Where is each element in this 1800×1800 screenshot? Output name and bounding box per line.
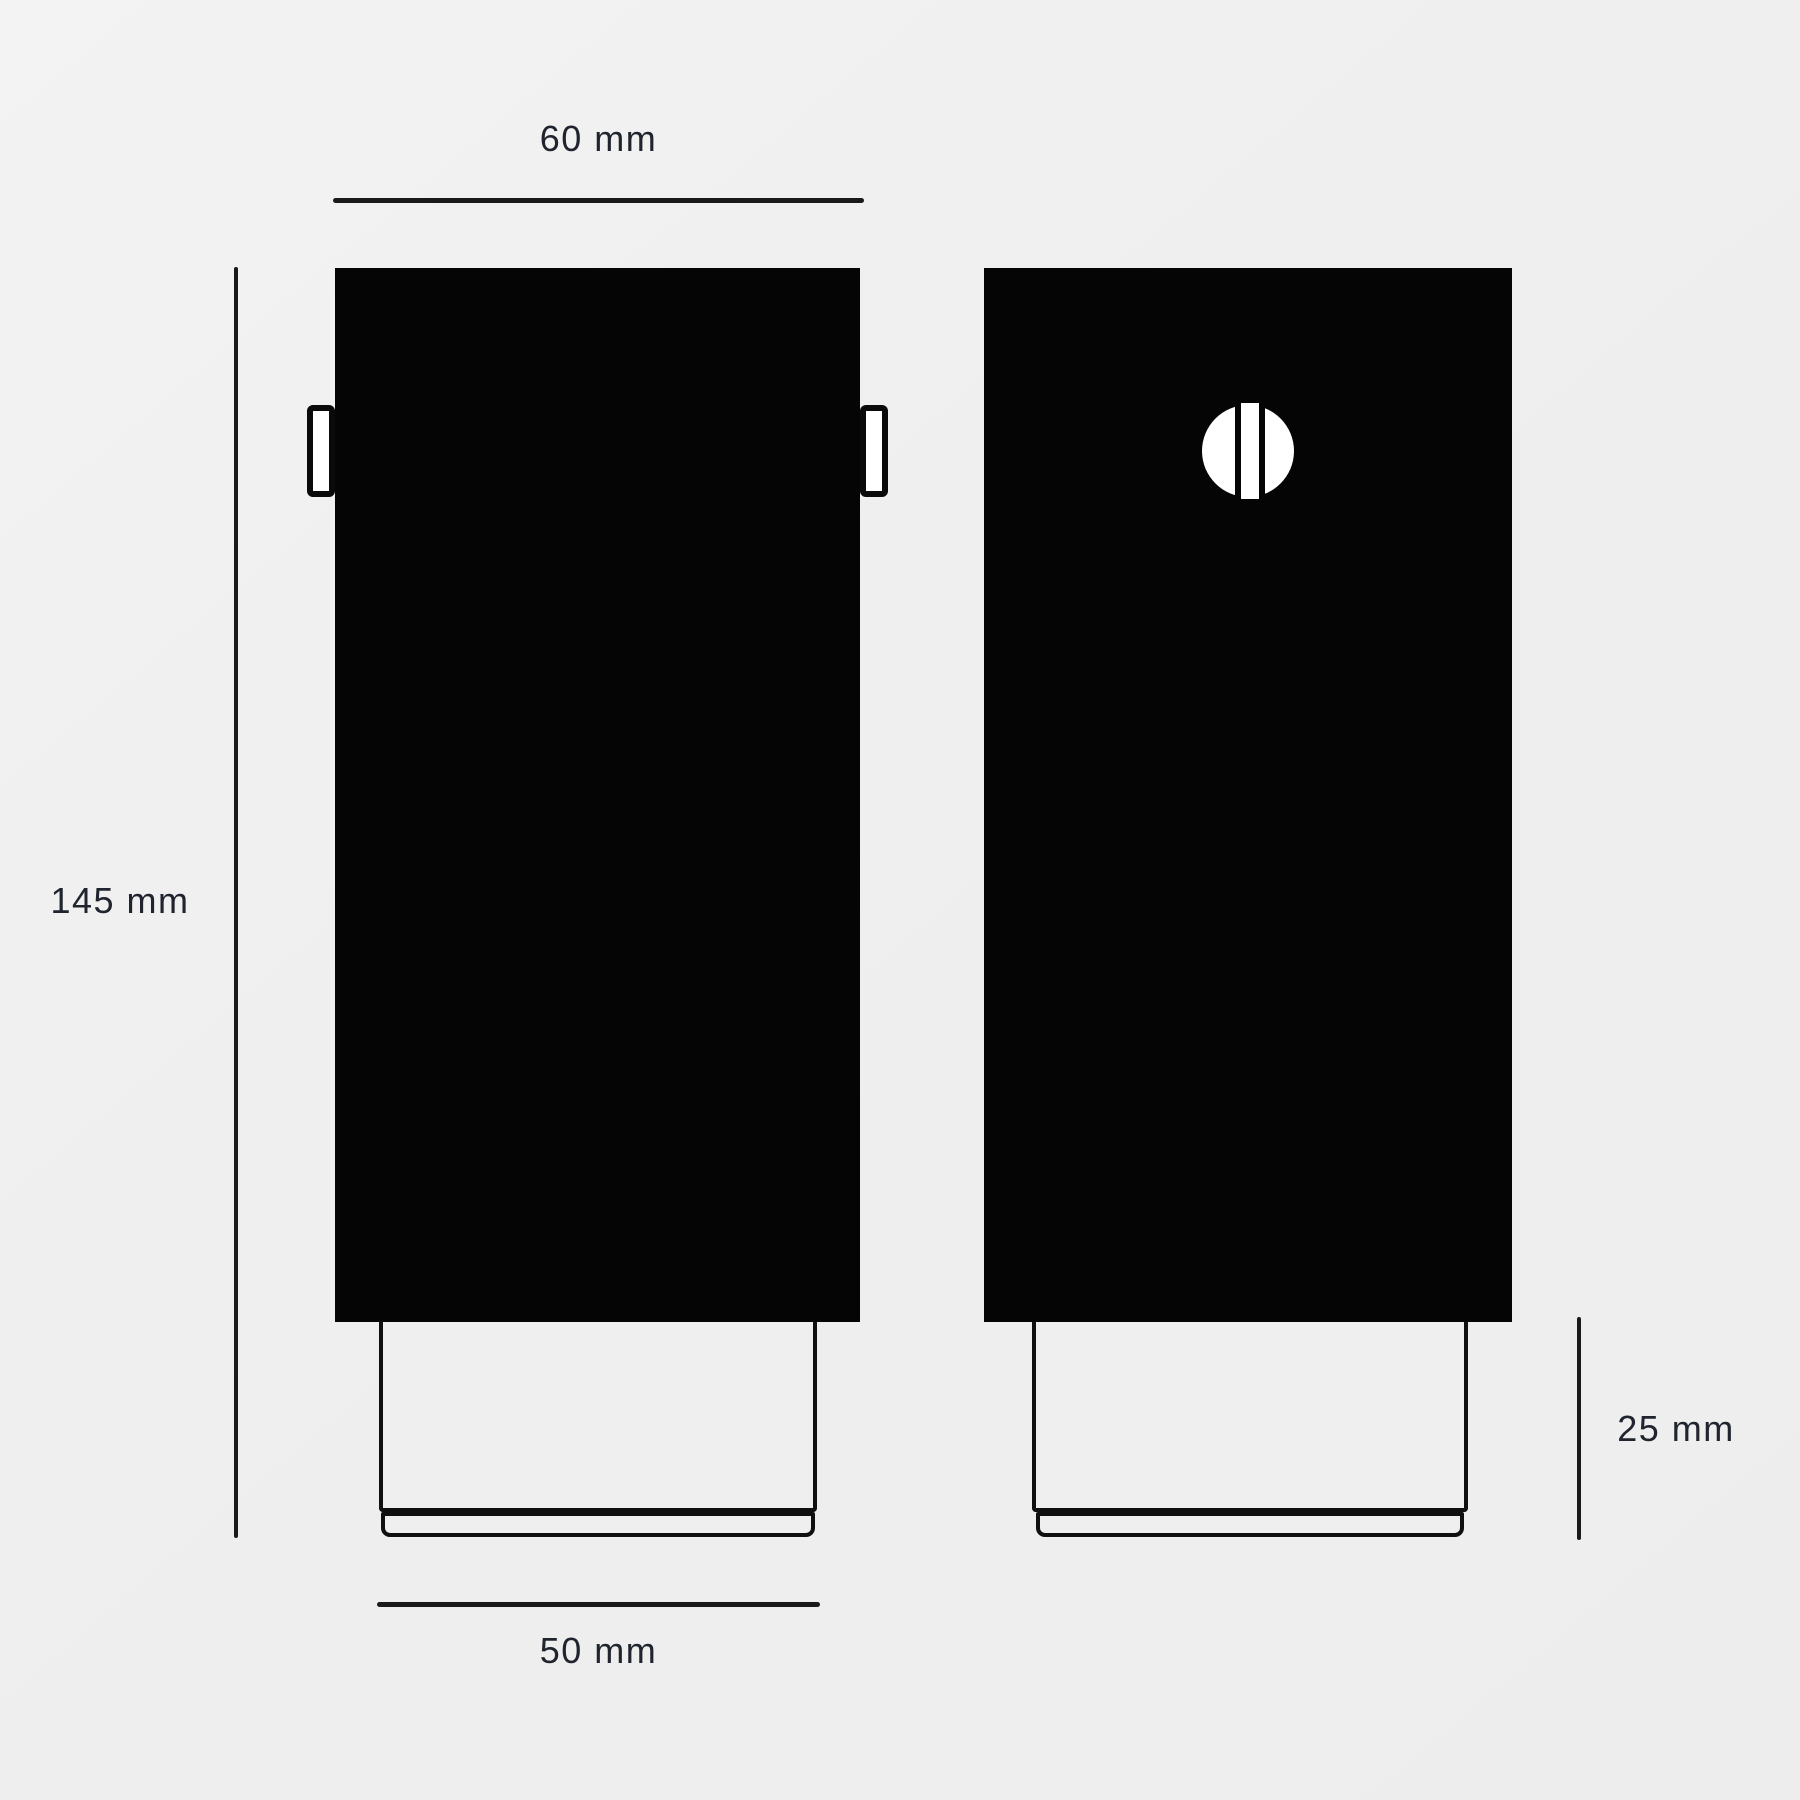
- overall-height-dimension-label: 145 mm: [30, 880, 210, 922]
- screw-slot-right-line: [1259, 403, 1265, 499]
- overall-width-dimension-line: [333, 198, 864, 203]
- screw-slot-left-line: [1235, 403, 1241, 499]
- dimension-drawing-canvas: 60 mm 145 mm 25 mm 50 mm: [0, 0, 1800, 1800]
- front-right-mounting-tab-icon: [860, 405, 888, 497]
- side-view-base-foot: [1036, 1512, 1464, 1537]
- overall-width-dimension-label: 60 mm: [333, 118, 864, 160]
- base-width-dimension-line: [377, 1602, 820, 1607]
- screw-head-icon: [1202, 405, 1294, 497]
- base-width-dimension-label: 50 mm: [377, 1630, 820, 1672]
- front-view-body: [335, 268, 860, 1322]
- front-left-mounting-tab-icon: [307, 405, 335, 497]
- front-view-base-foot: [381, 1512, 815, 1537]
- screw-slot: [1241, 403, 1259, 499]
- side-view-base: [1032, 1322, 1468, 1512]
- base-height-dimension-label: 25 mm: [1586, 1408, 1766, 1450]
- overall-height-dimension-line: [234, 267, 238, 1538]
- base-height-dimension-line: [1577, 1317, 1581, 1540]
- front-view-base: [379, 1322, 817, 1512]
